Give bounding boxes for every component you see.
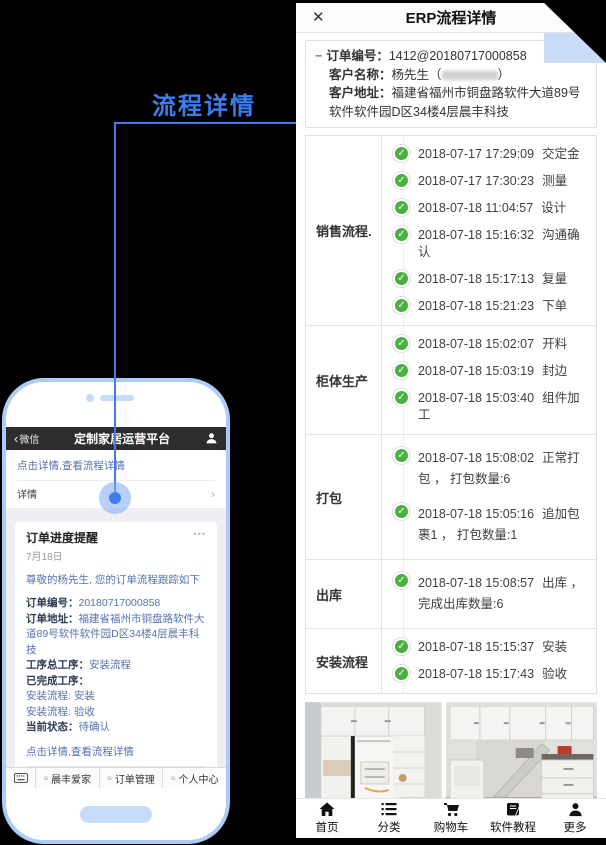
menu-label: 个人中心 (179, 771, 219, 786)
official-account-menubar: ≡ 晨丰爱家 ≡ 订单管理 ≡ 个人中心 (6, 767, 226, 788)
process-row-label: 柜体生产 (306, 326, 382, 434)
field-line: 订单编号：20180717000858 (26, 596, 206, 612)
collapse-minus-icon[interactable]: − (315, 49, 322, 63)
connector-dot (109, 492, 121, 504)
process-row-label: 出库 (306, 560, 382, 628)
menu-icon: ≡ (44, 774, 49, 783)
menu-item-order-manage[interactable]: ≡ 订单管理 (100, 768, 164, 788)
wechat-navbar: ‹ 微信 定制家居运营平台 (6, 427, 226, 450)
check-icon: ✓ (393, 145, 410, 162)
back-chevron-icon: ‹ (14, 434, 18, 444)
timeline-item: ✓2018-07-18 15:15:37安装 (392, 638, 590, 656)
book-icon (505, 802, 521, 817)
menu-item-home-brand[interactable]: ≡ 晨丰爱家 (36, 768, 100, 788)
timeline-item: ✓2018-07-17 17:30:23测量 (392, 172, 590, 190)
check-icon: ✓ (393, 638, 410, 655)
timeline-item: ✓2018-07-18 15:17:13复量 (392, 270, 590, 288)
nav-item-tutorials[interactable]: 软件教程 (482, 799, 544, 838)
timeline-item: ✓2018-07-18 15:03:40组件加工 (392, 389, 590, 424)
timeline-item: ✓2018-07-18 15:16:32沟通确认 (392, 226, 590, 261)
check-icon: ✓ (393, 389, 410, 406)
field-line: 订单地址：福建省福州市铜盘路软件大道89号软件软件园D区34楼4层晨丰科技 (26, 612, 206, 659)
erp-bottom-nav: 首页 分类 购物车 (296, 798, 606, 838)
check-icon: ✓ (393, 572, 410, 589)
timeline-item: ✓2018-07-18 15:03:19封边 (392, 362, 590, 380)
process-row-production: 柜体生产 ✓2018-07-18 15:02:07开料 ✓2018-07-18 … (306, 326, 596, 435)
timeline-item: ✓2018-07-17 17:29:09交定金 (392, 145, 590, 163)
wechat-back-label: 微信 (19, 431, 39, 446)
menu-label: 订单管理 (115, 771, 155, 786)
check-icon: ✓ (393, 297, 410, 314)
page-background: 流程详情 ‹ 微信 定制家居运营平台 点击详情,查 (0, 0, 606, 845)
check-icon: ✓ (393, 447, 410, 464)
view-process-link[interactable]: 点击详情,查看流程详情 (15, 736, 217, 766)
notification-greeting: 尊敬的杨先生, 您的订单流程跟踪如下 (26, 572, 206, 587)
phone-mockup: ‹ 微信 定制家居运营平台 点击详情,查看流程详情 详情 › (2, 378, 230, 844)
nav-item-home[interactable]: 首页 (296, 799, 358, 838)
process-row-label: 打包 (306, 435, 382, 559)
more-dots-icon[interactable]: ••• (194, 529, 206, 539)
check-icon: ✓ (393, 270, 410, 287)
customer-name-line: 客户名称：杨先生（） (315, 66, 587, 85)
chevron-right-icon: › (211, 487, 215, 501)
check-icon: ✓ (393, 503, 410, 520)
category-list-icon (381, 802, 397, 817)
process-row-label: 安装流程 (306, 629, 382, 693)
erp-title: ERP流程详情 (406, 7, 497, 28)
timeline-item: ✓2018-07-18 15:08:57出库 ， 完成出库数量:6 (392, 572, 590, 615)
menu-icon: ≡ (171, 774, 176, 783)
erp-header: ✕ ERP流程详情 (296, 3, 606, 33)
phone-camera-dot (86, 394, 94, 402)
nav-item-cart[interactable]: 购物车 (420, 799, 482, 838)
phone-speaker-pill (100, 395, 134, 401)
timeline-item: ✓2018-07-18 11:04:57设计 (392, 199, 590, 217)
customer-address-line: 客户地址：福建省福州市铜盘路软件大道89号软件软件园D区34楼4层晨丰科技 (315, 84, 587, 121)
check-icon: ✓ (393, 665, 410, 682)
timeline-item: ✓2018-07-18 15:17:43验收 (392, 665, 590, 683)
notification-fields: 订单编号：20180717000858 订单地址：福建省福州市铜盘路软件大道89… (26, 596, 206, 736)
keyboard-icon (14, 773, 28, 783)
process-row-install: 安装流程 ✓2018-07-18 15:15:37安装 ✓2018-07-18 … (306, 629, 596, 693)
menu-label: 晨丰爱家 (51, 771, 91, 786)
field-line: 已完成工序： (26, 674, 206, 690)
notification-date: 7月18日 (26, 548, 206, 563)
notification-title: 订单进度提醒 (26, 529, 98, 546)
order-progress-card: 订单进度提醒 ••• 7月18日 尊敬的杨先生, 您的订单流程跟踪如下 订单编号… (15, 522, 217, 767)
timeline-item: ✓2018-07-18 15:02:07开料 (392, 335, 590, 353)
person-icon (568, 802, 583, 817)
menu-icon: ≡ (107, 774, 112, 783)
view-process-link[interactable]: 点击详情,查看流程详情 (6, 450, 226, 480)
connector-line-vertical (114, 122, 116, 498)
wechat-title: 定制家居运营平台 (39, 430, 205, 447)
keyboard-toggle[interactable] (6, 768, 36, 788)
process-row-outbound: 出库 ✓2018-07-18 15:08:57出库 ， 完成出库数量:6 (306, 560, 596, 629)
detail-label: 详情 (17, 486, 37, 501)
field-line: 安装流程: 验收 (26, 705, 206, 721)
nav-item-more[interactable]: 更多 (544, 799, 606, 838)
check-icon: ✓ (393, 199, 410, 216)
check-icon: ✓ (393, 362, 410, 379)
close-icon[interactable]: ✕ (312, 8, 325, 26)
menu-item-personal-center[interactable]: ≡ 个人中心 (163, 768, 226, 788)
timeline-item: ✓2018-07-18 15:08:02正常打包 ， 打包数量:6 (392, 447, 590, 490)
erp-detail-panel: ✕ ERP流程详情 −订单编号：1412@20180717000858 客户名称… (296, 3, 606, 838)
process-row-label: 销售流程. (306, 136, 382, 325)
field-line: 当前状态：待确认 (26, 720, 206, 736)
connector-line-horizontal (114, 122, 296, 124)
process-row-packing: 打包 ✓2018-07-18 15:08:02正常打包 ， 打包数量:6 ✓20… (306, 435, 596, 560)
cart-icon (443, 802, 460, 817)
check-icon: ✓ (393, 335, 410, 352)
contact-person-icon[interactable] (205, 432, 218, 445)
nav-item-categories[interactable]: 分类 (358, 799, 420, 838)
erp-footer: Copyright © 晨丰全屋定制商城 闽ICP备16007300号- ↑ 顶… (305, 837, 597, 845)
phone-home-button[interactable] (80, 806, 152, 823)
timeline-item: ✓2018-07-18 15:21:23下单 (392, 297, 590, 315)
process-table: 销售流程. ✓2018-07-17 17:29:09交定金 ✓2018-07-1… (305, 135, 597, 694)
wechat-back-button[interactable]: ‹ 微信 (14, 431, 39, 446)
check-icon: ✓ (393, 172, 410, 189)
check-icon: ✓ (393, 226, 410, 243)
field-line: 安装流程: 安装 (26, 689, 206, 705)
field-line: 工序总工序：安装流程 (26, 658, 206, 674)
timeline-item: ✓2018-07-18 15:05:16追加包裹1 ， 打包数量:1 (392, 503, 590, 546)
home-icon (319, 802, 335, 817)
annotation-title: 流程详情 (152, 86, 292, 121)
process-row-sales: 销售流程. ✓2018-07-17 17:29:09交定金 ✓2018-07-1… (306, 136, 596, 326)
masked-phone-number (442, 71, 498, 80)
